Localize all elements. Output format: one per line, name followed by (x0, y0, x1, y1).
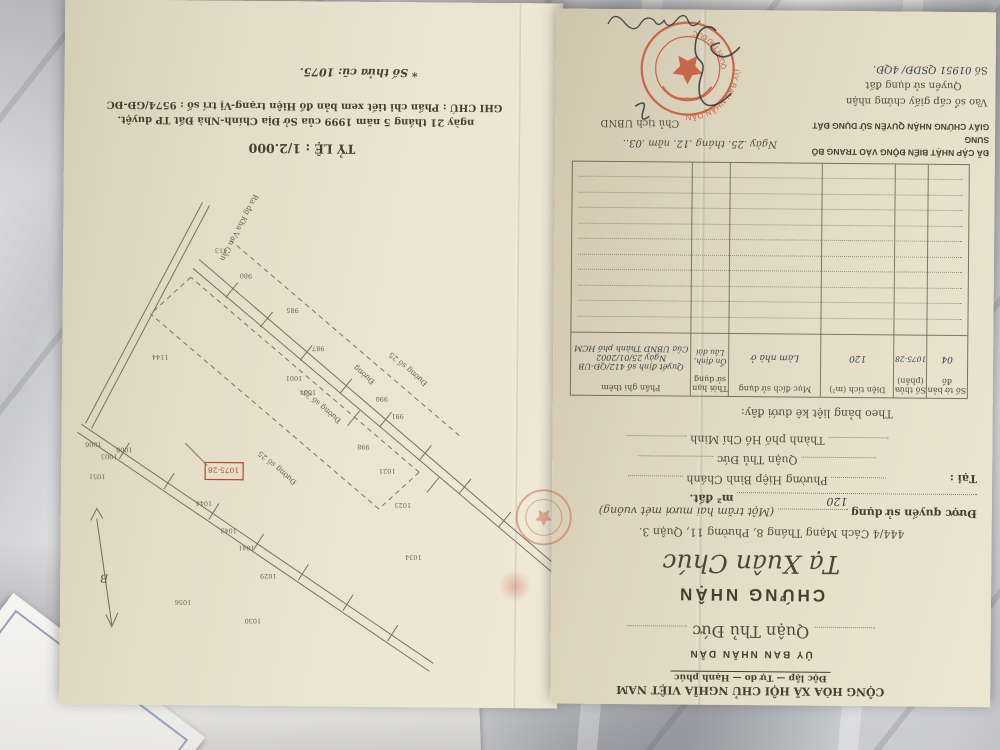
cell-ghi-them-1: Quyết định số 412/QĐ-UB (571, 362, 691, 372)
holder-address: 444/4 Cách Mạng Tháng 8, Phường 11, Quận… (572, 524, 972, 541)
area-value: 120 (826, 495, 847, 508)
col-header: Mục đích sử dụng (729, 384, 821, 394)
empty-dotted-row (578, 285, 962, 289)
date-month: 12 (676, 138, 689, 149)
cell-so-thua: 1075-28 (894, 354, 927, 363)
road-label: Đường (352, 363, 377, 386)
parcel-table: Số tờ bản đồ Số thửa (phần) Diện tích (m… (570, 161, 970, 399)
empty-dotted-row (579, 192, 963, 196)
ward-value: Phường Hiệp Bình Chánh (686, 473, 828, 487)
road-label: Đường số 25 (301, 388, 343, 426)
col-header: Diện tích (m²) (821, 385, 894, 395)
date-word-month: tháng (695, 138, 724, 149)
col-header: Thời hạn sử dụng (691, 374, 729, 393)
city-value: Thành phố Hồ Chí Minh (690, 433, 824, 447)
update-note-line2: GIẤY CHỨNG NHẬN QUYỀN SỬ DỤNG ĐẤT (799, 119, 989, 133)
col-header: Số tờ bản đồ (927, 376, 967, 395)
date-day: 25 (731, 138, 744, 149)
grant-label: Được quyền sử dụng (851, 506, 977, 520)
empty-dotted-row (578, 300, 962, 304)
date-word-year: năm (648, 137, 670, 148)
road-label: Ra đg Kha Vạn Cân (218, 193, 260, 263)
area-words: (Một trăm hai mươi mét vuông) (599, 504, 774, 519)
certify-title: CHỨNG NHẬN (601, 583, 901, 607)
national-motto: Độc lập — Tự do — Hạnh phúc (670, 670, 831, 682)
date-year: 03 (629, 137, 642, 148)
map-scale-label: TỶ LỆ : 1/2.000 (182, 140, 422, 158)
certificate-page: CỘNG HÒA XÃ HỘI CHỦ NGHĨA VIỆT NAM Độc l… (550, 8, 996, 707)
old-parcel-note: * Số thửa cũ: 1075. (198, 64, 418, 80)
empty-dotted-row (578, 223, 962, 227)
date-word-day: Ngày (750, 138, 777, 149)
update-note-line1: ĐÃ CẬP NHẬT BIẾN ĐỘNG VÀO TRANG BỔ SUNG (799, 132, 989, 159)
land-certificate-document: B 1075-28 114441398098598710011004990991… (0, 0, 1000, 750)
road-label: Đường số 25 (256, 449, 298, 487)
photo-scene: { "doc": { "map_page": { "scale_label": … (0, 0, 1000, 750)
registry-prefix: Số (975, 64, 988, 75)
national-header: CỘNG HÒA XÃ HỘI CHỦ NGHĨA VIỆT NAM (580, 682, 920, 699)
col-header: Phần ghi thêm (571, 382, 691, 392)
registry-number: 01951 QSDĐ/ 4QĐ. (873, 63, 972, 75)
empty-dotted-row (578, 207, 962, 211)
issuer-district: Quận Thủ Đức (692, 622, 809, 642)
empty-dotted-row (578, 238, 962, 242)
per-table-label: Theo bảng liệt kê dưới đây: (741, 405, 893, 420)
svg-text:ỦY BAN NHÂN DÂN: ỦY BAN NHÂN DÂN (685, 68, 740, 122)
empty-dotted-row (578, 316, 962, 320)
empty-dotted-row (579, 176, 963, 180)
ink-smudge (500, 569, 530, 603)
stamp-rim-top-text: ỦY BAN NHÂN DÂN (685, 68, 740, 122)
ubnd-round-stamp: ỦY BAN NHÂN DÂN QUẬN THỦ ĐỨC (565, 9, 746, 128)
registry-line1: Vào sổ cấp giấy chứng nhận (787, 91, 987, 109)
empty-dotted-row (578, 254, 962, 258)
cell-thoi-han-2: Lâu dài (691, 348, 729, 357)
col-header: Số thửa (phần) (894, 376, 927, 395)
road-label: Đường số 25 (387, 350, 429, 388)
empty-dotted-row (578, 269, 962, 273)
cell-dien-tich: 120 (821, 353, 894, 364)
spine-partial-stamp (512, 486, 575, 549)
area-unit: m² đất. (689, 492, 733, 505)
cell-so-to: 04 (927, 354, 967, 364)
cell-thoi-han-1: Ổn định, (691, 357, 729, 366)
holder-name: Tạ Xuân Chúc (581, 546, 921, 580)
cadastral-map-page: B 1075-28 114441398098598710011004990991… (59, 0, 563, 709)
at-label: Tại : (950, 471, 978, 485)
registry-line2: Quyền sử dụng đất (787, 75, 987, 93)
district-value: Quận Thủ Đức (717, 453, 797, 467)
cell-ghi-them-3: Của UBND Thành phố HCM (571, 344, 691, 354)
issuer-label: ỦY BAN NHÂN DÂN (601, 645, 901, 660)
empty-dotted-rows (571, 395, 967, 398)
cell-muc-dich: Làm nhà ở (729, 352, 821, 363)
